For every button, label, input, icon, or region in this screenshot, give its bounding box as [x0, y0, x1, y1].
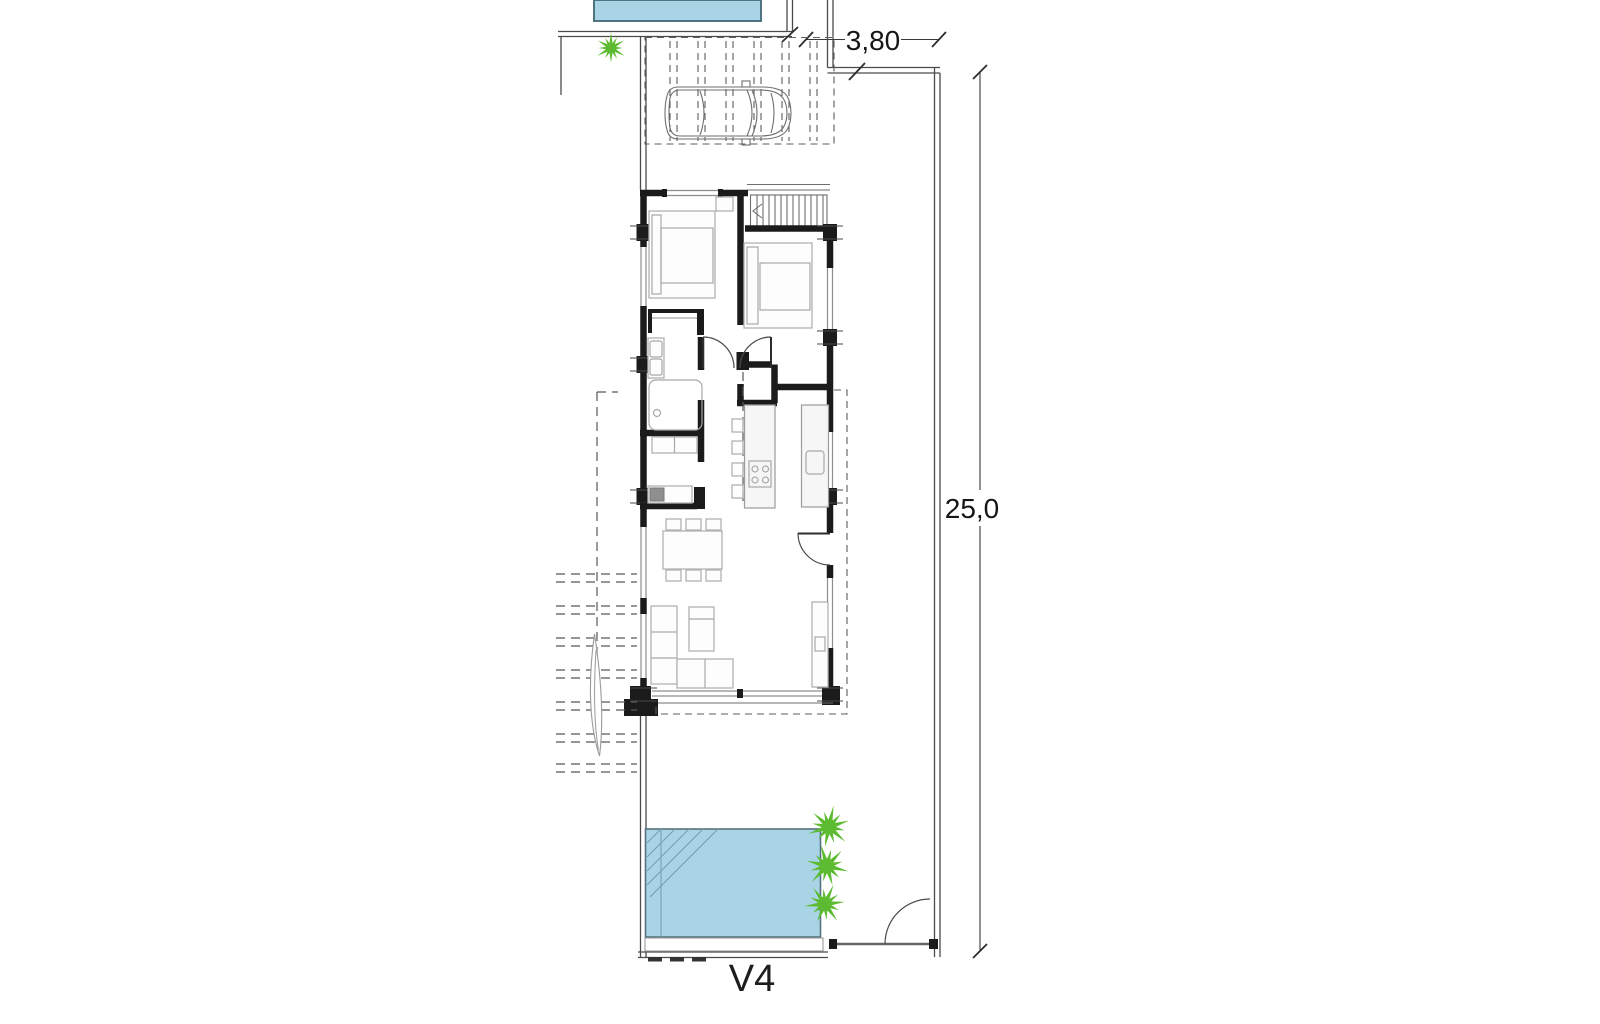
terrace-door: [798, 533, 830, 565]
garden-gate: [829, 899, 938, 949]
bedroom-2: [744, 243, 812, 328]
stool: [732, 419, 743, 432]
dining-table: [663, 531, 722, 569]
plot-depth-label: 25,0: [945, 493, 1000, 524]
laundry: [648, 437, 697, 503]
pool-area: [645, 829, 823, 962]
neighbor-pool: [594, 0, 761, 21]
chair: [666, 519, 681, 530]
chair: [706, 570, 721, 581]
chair: [686, 519, 701, 530]
boundary-mark: [648, 957, 662, 962]
stool: [732, 441, 743, 454]
unit-label: V4: [729, 958, 775, 1000]
sofa: [651, 606, 677, 684]
staircase: [747, 185, 830, 227]
plot-width-label: 3,80: [846, 25, 901, 56]
swimming-pool: [646, 829, 821, 937]
living-room: [651, 602, 828, 688]
carport: [645, 38, 834, 146]
shower-drain-icon: [654, 410, 661, 417]
stool: [732, 485, 743, 498]
bathroom: [648, 338, 702, 430]
boundary-mark: [692, 957, 706, 962]
dimension-plot-depth: 25,0: [945, 65, 1000, 958]
bed: [744, 243, 812, 328]
kitchen-island: [745, 405, 776, 508]
car-icon: [665, 81, 791, 145]
nightstand: [716, 197, 733, 211]
armchair: [689, 607, 714, 651]
bed: [649, 211, 715, 298]
kitchen: [732, 405, 829, 508]
floor-plan-canvas: 3,80 25,0: [0, 0, 1600, 1024]
chair: [666, 570, 681, 581]
closet: [650, 309, 704, 335]
pool-deck: [645, 938, 823, 951]
dimension-plot-width: 3,80: [799, 25, 946, 56]
bedroom-1: [649, 197, 733, 298]
chair: [686, 570, 701, 581]
stool: [732, 463, 743, 476]
boundary-mark: [670, 957, 684, 962]
shower: [649, 380, 702, 430]
chair: [706, 519, 721, 530]
dining-area: [663, 519, 722, 581]
